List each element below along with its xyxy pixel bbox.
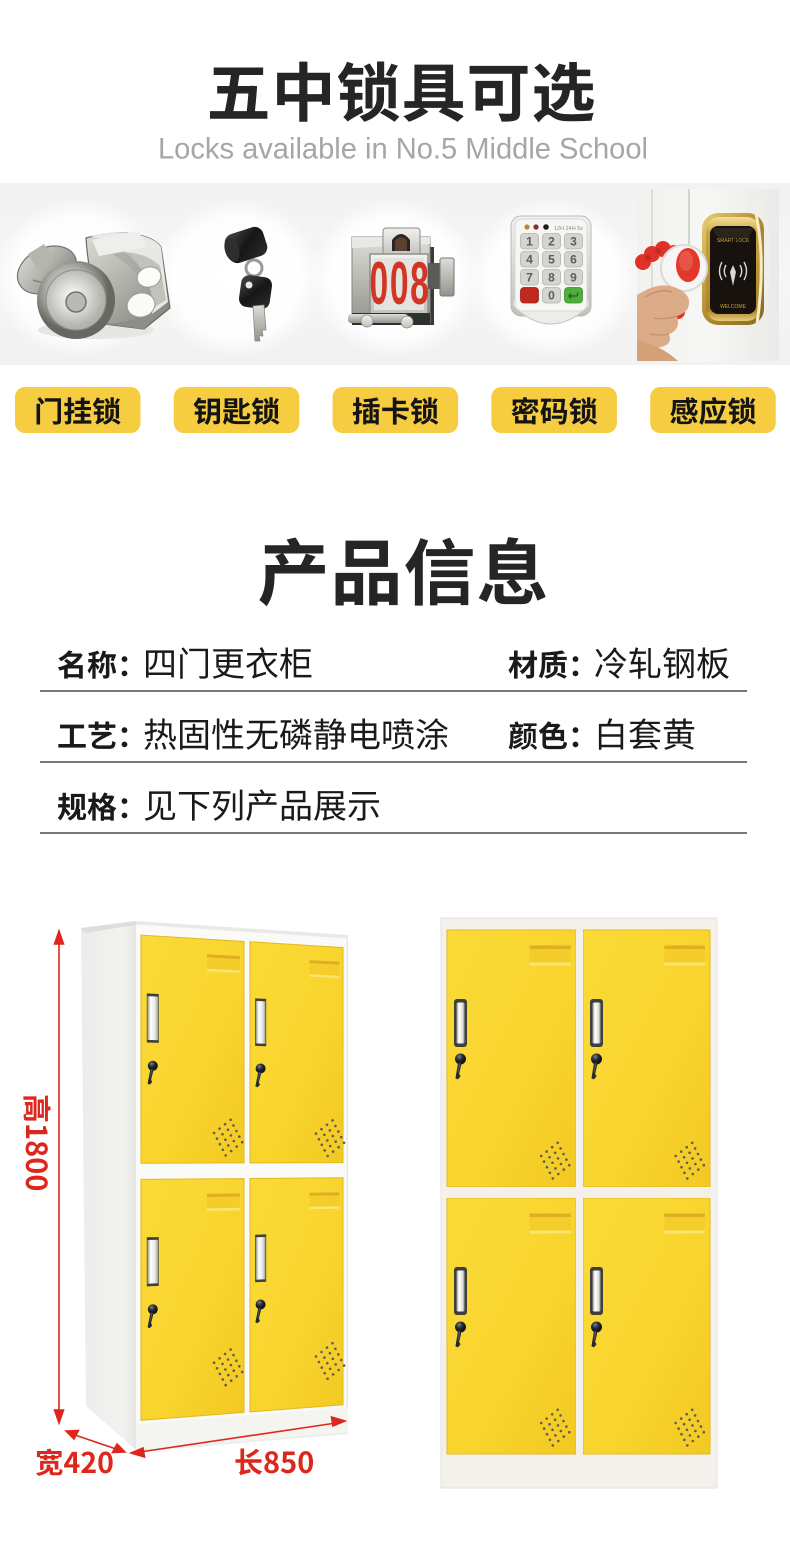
svg-text:0: 0 bbox=[548, 289, 555, 303]
svg-text:SMART LOCK: SMART LOCK bbox=[717, 238, 750, 244]
svg-text:Locks available in No.5 Middle: Locks available in No.5 Middle School bbox=[158, 132, 648, 165]
svg-text:9: 9 bbox=[570, 271, 577, 285]
svg-text:3: 3 bbox=[570, 235, 577, 249]
svg-text:8: 8 bbox=[548, 271, 555, 285]
svg-text:C: C bbox=[526, 291, 533, 301]
svg-text:7: 7 bbox=[526, 271, 533, 285]
svg-text:1: 1 bbox=[526, 235, 533, 249]
svg-text:4: 4 bbox=[526, 253, 533, 267]
svg-text:008: 008 bbox=[369, 251, 430, 318]
svg-text:6: 6 bbox=[570, 253, 577, 267]
svg-text:12H 24H 5s: 12H 24H 5s bbox=[554, 226, 583, 232]
svg-text:WELCOME: WELCOME bbox=[720, 304, 747, 310]
svg-text:5: 5 bbox=[548, 253, 555, 267]
svg-text:2: 2 bbox=[548, 235, 555, 249]
